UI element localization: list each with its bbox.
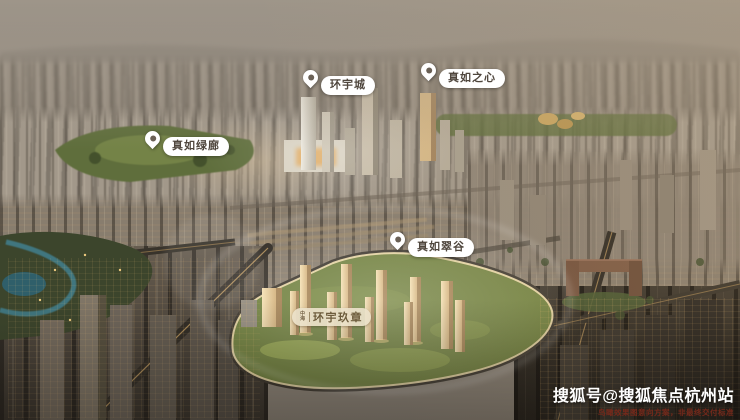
pin-dot xyxy=(424,66,432,74)
site-plaque: 中海 环宇玖章 xyxy=(292,308,371,326)
marker-label-zhenrucuigu: 真如翠谷 xyxy=(408,238,474,257)
watermark-disclaimer: 鸟瞰效果图意向方案，非最终交付标准 xyxy=(553,407,734,418)
marker-label-zhenrulvlang: 真如绿廊 xyxy=(163,137,229,156)
pin-dot xyxy=(393,235,401,243)
marker-label-zhenruzhixin: 真如之心 xyxy=(439,69,505,88)
vignette-overlay xyxy=(0,0,740,420)
watermark-account: 搜狐号@搜狐焦点杭州站 xyxy=(553,382,734,406)
pin-dot xyxy=(148,134,156,142)
site-plaque-label: 环宇玖章 xyxy=(313,309,363,325)
pin-dot xyxy=(306,73,314,81)
developer-logo: 中海 xyxy=(300,312,306,322)
watermark: 搜狐号@搜狐焦点杭州站 鸟瞰效果图意向方案，非最终交付标准 xyxy=(553,382,734,418)
aerial-city-render: 环宇城 真如之心 真如绿廊 真如翠谷 中海 环宇玖章 搜狐号@搜狐焦点杭州站 鸟… xyxy=(0,0,740,420)
marker-label-huanyucheng: 环宇城 xyxy=(321,76,375,95)
plaque-divider xyxy=(309,312,310,322)
